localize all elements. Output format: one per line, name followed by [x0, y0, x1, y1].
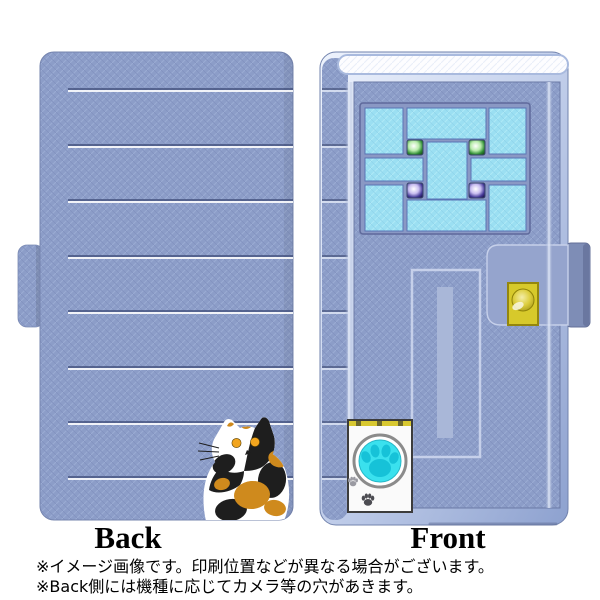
window-pane [489, 185, 526, 231]
door-panel-slot [437, 287, 453, 438]
window-pane [427, 142, 467, 199]
front-label: Front [410, 520, 485, 556]
door-window-grid [360, 103, 530, 234]
cat-eye-left [232, 438, 241, 447]
pet-door [348, 420, 412, 512]
window-pane [365, 158, 423, 181]
front-spine [322, 58, 348, 520]
disclaimer-note-1: ※イメージ画像です。印刷位置などが異なる場合がございます。 [36, 557, 494, 577]
window-pane [365, 108, 403, 154]
strap-edge-shading [583, 244, 589, 326]
strap-clasp [487, 243, 590, 327]
back-label: Back [94, 520, 161, 556]
disclaimer-note-2: ※Back側には機種に応じてカメラ等の穴があきます。 [36, 577, 494, 597]
product-illustration [0, 0, 600, 555]
front-case [320, 52, 590, 525]
back-case [18, 52, 293, 523]
right-fold-crease [545, 82, 553, 508]
cat-eye-right [250, 437, 259, 446]
window-pane [471, 158, 526, 181]
transom-window [338, 55, 568, 74]
disclaimer-notes: ※イメージ画像です。印刷位置などが異なる場合がございます。 ※Back側には機種… [36, 557, 494, 597]
back-edge-shading [284, 52, 293, 520]
gem-green-icon [407, 140, 423, 155]
gem-purple-icon [469, 183, 485, 198]
window-pane [407, 108, 486, 139]
product-image: Back Front ※イメージ画像です。印刷位置などが異なる場合がございます。… [0, 0, 600, 600]
gem-green-icon [469, 140, 485, 155]
window-pane [407, 200, 486, 231]
window-pane [489, 108, 526, 154]
gem-purple-icon [407, 183, 423, 198]
window-pane [365, 185, 403, 231]
